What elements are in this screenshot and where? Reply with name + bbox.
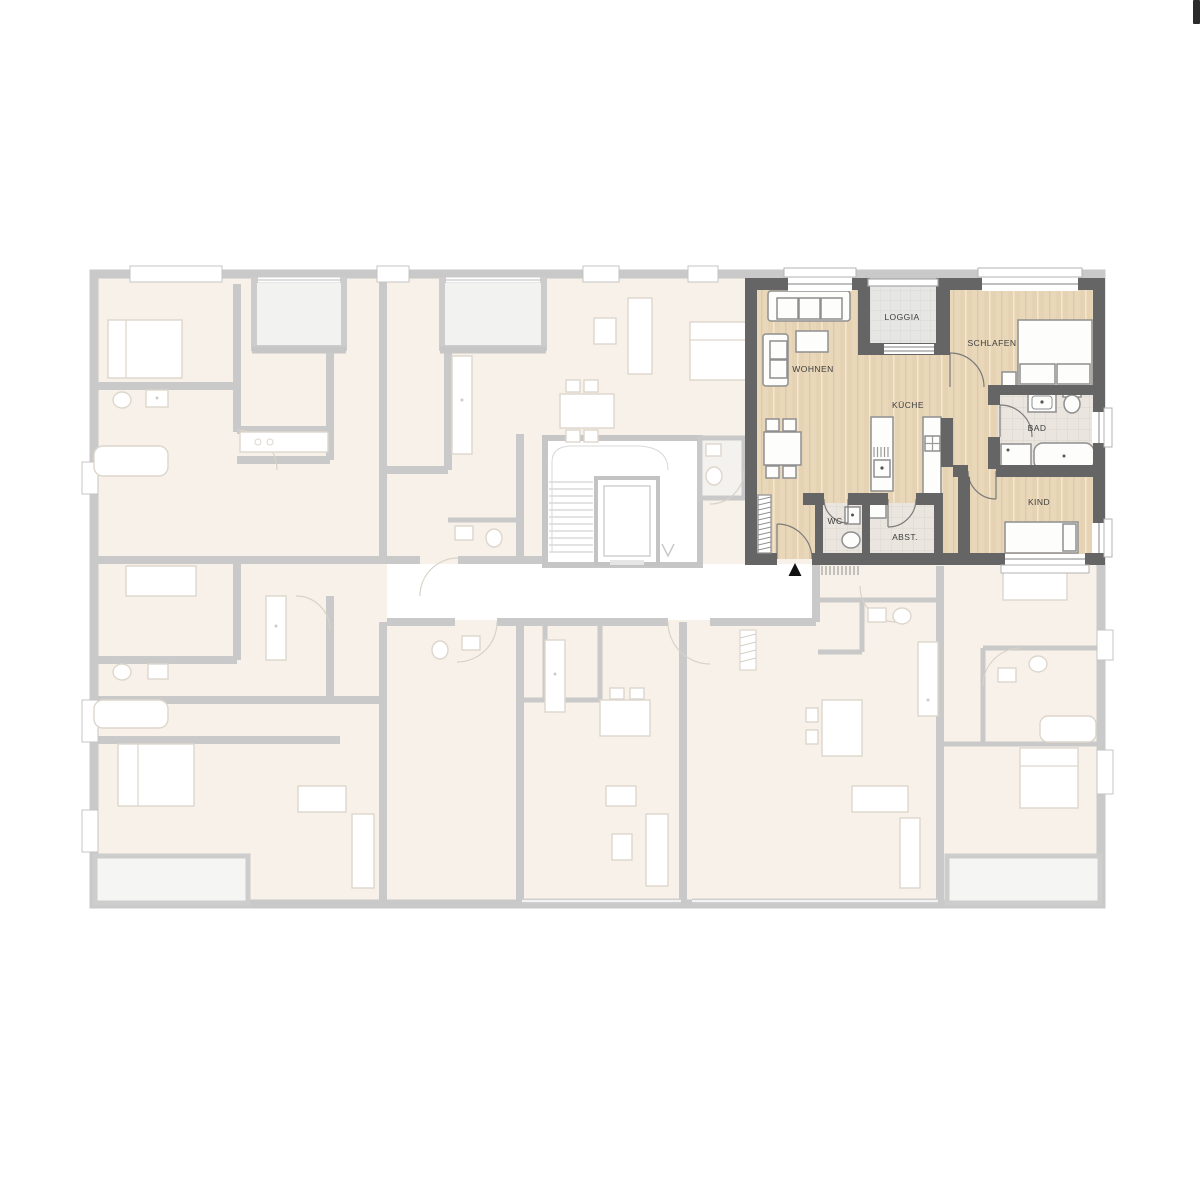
dining-set <box>764 419 801 478</box>
stairwell <box>545 438 700 565</box>
sofa-large <box>768 291 850 321</box>
floor-plan-page: WOHNEN LOGGIA SCHLAFEN KÜCHE BAD KIND WC… <box>0 0 1200 1200</box>
kitchen-island <box>871 417 893 491</box>
room-label-abst: ABST. <box>892 532 918 542</box>
loggia-glass-door <box>884 344 934 354</box>
loggia-railing <box>868 279 938 286</box>
corner-artifact <box>1193 0 1200 24</box>
room-label-wohnen: WOHNEN <box>792 364 833 374</box>
highlighted-apartment <box>745 268 1112 575</box>
window-sill <box>1104 408 1112 447</box>
floor-plan-drawing: WOHNEN LOGGIA SCHLAFEN KÜCHE BAD KIND WC… <box>0 0 1200 1200</box>
elevator <box>596 478 658 564</box>
window-sill <box>784 268 856 277</box>
balcony-left <box>95 856 248 903</box>
room-label-wc: WC <box>827 516 842 526</box>
sofa-small <box>763 334 788 386</box>
room-label-kueche: KÜCHE <box>892 400 924 410</box>
loggia-neighbor-mid <box>440 280 546 350</box>
window-sill <box>1001 565 1089 573</box>
wardrobe <box>758 495 771 553</box>
balcony-right <box>947 856 1100 903</box>
coffee-table <box>796 331 828 352</box>
loggia-neighbor-left <box>252 280 346 350</box>
room-label-kind: KIND <box>1028 497 1050 507</box>
stair-wc <box>700 438 744 498</box>
room-label-schlafen: SCHLAFEN <box>968 338 1017 348</box>
window-sill <box>1104 519 1112 557</box>
room-label-loggia: LOGGIA <box>884 312 919 322</box>
kitchen-counter <box>923 417 941 497</box>
window-sill <box>978 268 1082 277</box>
single-bed <box>1005 522 1078 553</box>
room-label-bad: BAD <box>1028 423 1047 433</box>
corridor <box>387 564 813 620</box>
